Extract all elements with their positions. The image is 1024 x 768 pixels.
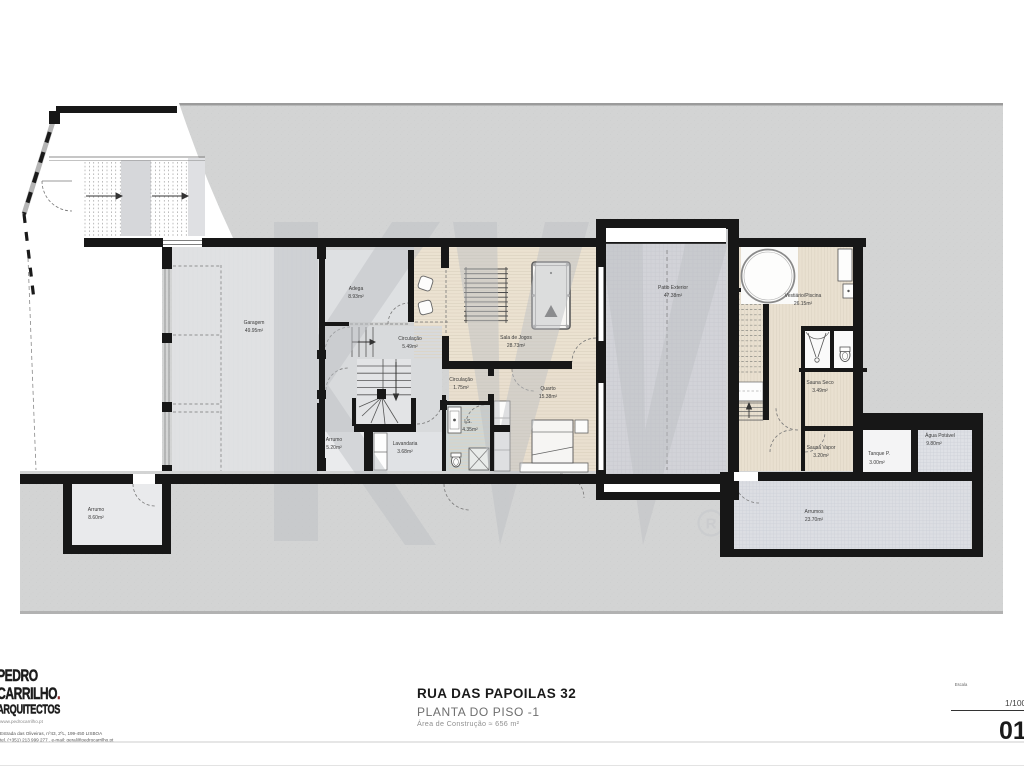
svg-text:28.73m²: 28.73m²	[507, 343, 526, 349]
svg-text:8.60m²: 8.60m²	[88, 515, 104, 521]
svg-text:8.93m²: 8.93m²	[348, 294, 364, 300]
svg-text:Patio Exterior: Patio Exterior	[658, 285, 688, 291]
svg-text:5.49m²: 5.49m²	[402, 344, 418, 350]
svg-text:01.: 01.	[999, 717, 1024, 745]
svg-text:PLANTA DO PISO -1: PLANTA DO PISO -1	[417, 705, 540, 719]
svg-text:15.38m²: 15.38m²	[539, 394, 558, 400]
svg-text:Estrada das Oliveiras, nº43, 2: Estrada das Oliveiras, nº43, 2ºL, 199-45…	[0, 731, 103, 736]
svg-text:ARQUITECTOS: ARQUITECTOS	[0, 703, 60, 717]
svg-text:Sala de Jogos: Sala de Jogos	[500, 335, 532, 341]
svg-text:Tanque P.: Tanque P.	[868, 451, 890, 457]
svg-text:Escala: Escala	[955, 682, 968, 687]
svg-text:5.20m²: 5.20m²	[326, 445, 342, 451]
svg-text:Circulação: Circulação	[449, 377, 473, 383]
svg-text:Sauna Vapor: Sauna Vapor	[807, 445, 836, 451]
svg-text:49.95m²: 49.95m²	[245, 328, 264, 334]
svg-text:Arrumos: Arrumos	[805, 509, 824, 515]
svg-text:www.pedrocarrilho.pt: www.pedrocarrilho.pt	[0, 719, 44, 724]
svg-text:3.49m²: 3.49m²	[812, 388, 828, 394]
svg-text:Quarto: Quarto	[540, 386, 556, 392]
svg-text:Água Potável: Água Potável	[925, 432, 955, 439]
svg-text:1/100: 1/100	[1005, 698, 1024, 708]
svg-text:9.80m²: 9.80m²	[926, 441, 942, 447]
svg-text:CARRILHO.: CARRILHO.	[0, 685, 60, 703]
svg-text:Arrumo: Arrumo	[88, 507, 105, 513]
svg-text:26.15m²: 26.15m²	[794, 301, 813, 307]
svg-text:Adega: Adega	[349, 286, 364, 292]
svg-text:Garagem: Garagem	[244, 320, 265, 326]
svg-text:Vestiário/Piscina: Vestiário/Piscina	[785, 293, 822, 299]
svg-text:Arrumo: Arrumo	[326, 437, 343, 443]
svg-text:3.20m²: 3.20m²	[813, 453, 829, 459]
svg-text:Sauna Seco: Sauna Seco	[806, 380, 833, 386]
svg-text:23.70m²: 23.70m²	[805, 517, 824, 523]
svg-text:Circulação: Circulação	[398, 336, 422, 342]
svg-text:4.35m²: 4.35m²	[462, 427, 478, 433]
svg-text:PEDRO: PEDRO	[0, 667, 38, 685]
svg-text:R: R	[706, 516, 717, 533]
svg-text:Lavandaria: Lavandaria	[393, 441, 418, 447]
svg-text:Área de Construção ≈ 656 m²: Área de Construção ≈ 656 m²	[417, 719, 520, 728]
svg-text:47.38m²: 47.38m²	[664, 293, 683, 299]
svg-text:RUA DAS PAPOILAS 32: RUA DAS PAPOILAS 32	[417, 686, 576, 701]
svg-text:1.75m²: 1.75m²	[453, 385, 469, 391]
svg-text:3.68m²: 3.68m²	[397, 449, 413, 455]
svg-text:3.00m²: 3.00m²	[869, 460, 885, 466]
svg-text:I.S.: I.S.	[464, 419, 472, 425]
